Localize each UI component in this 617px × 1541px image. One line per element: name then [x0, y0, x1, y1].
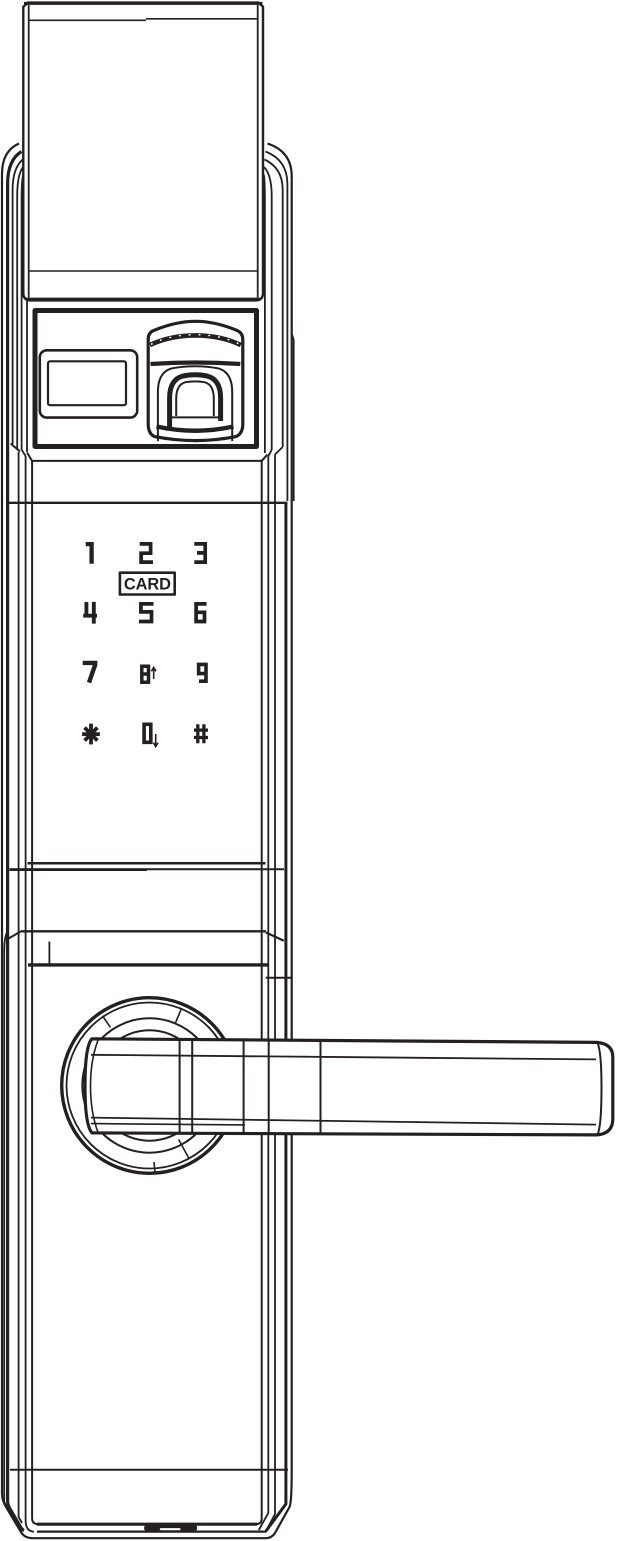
svg-text:CARD: CARD	[124, 575, 171, 593]
